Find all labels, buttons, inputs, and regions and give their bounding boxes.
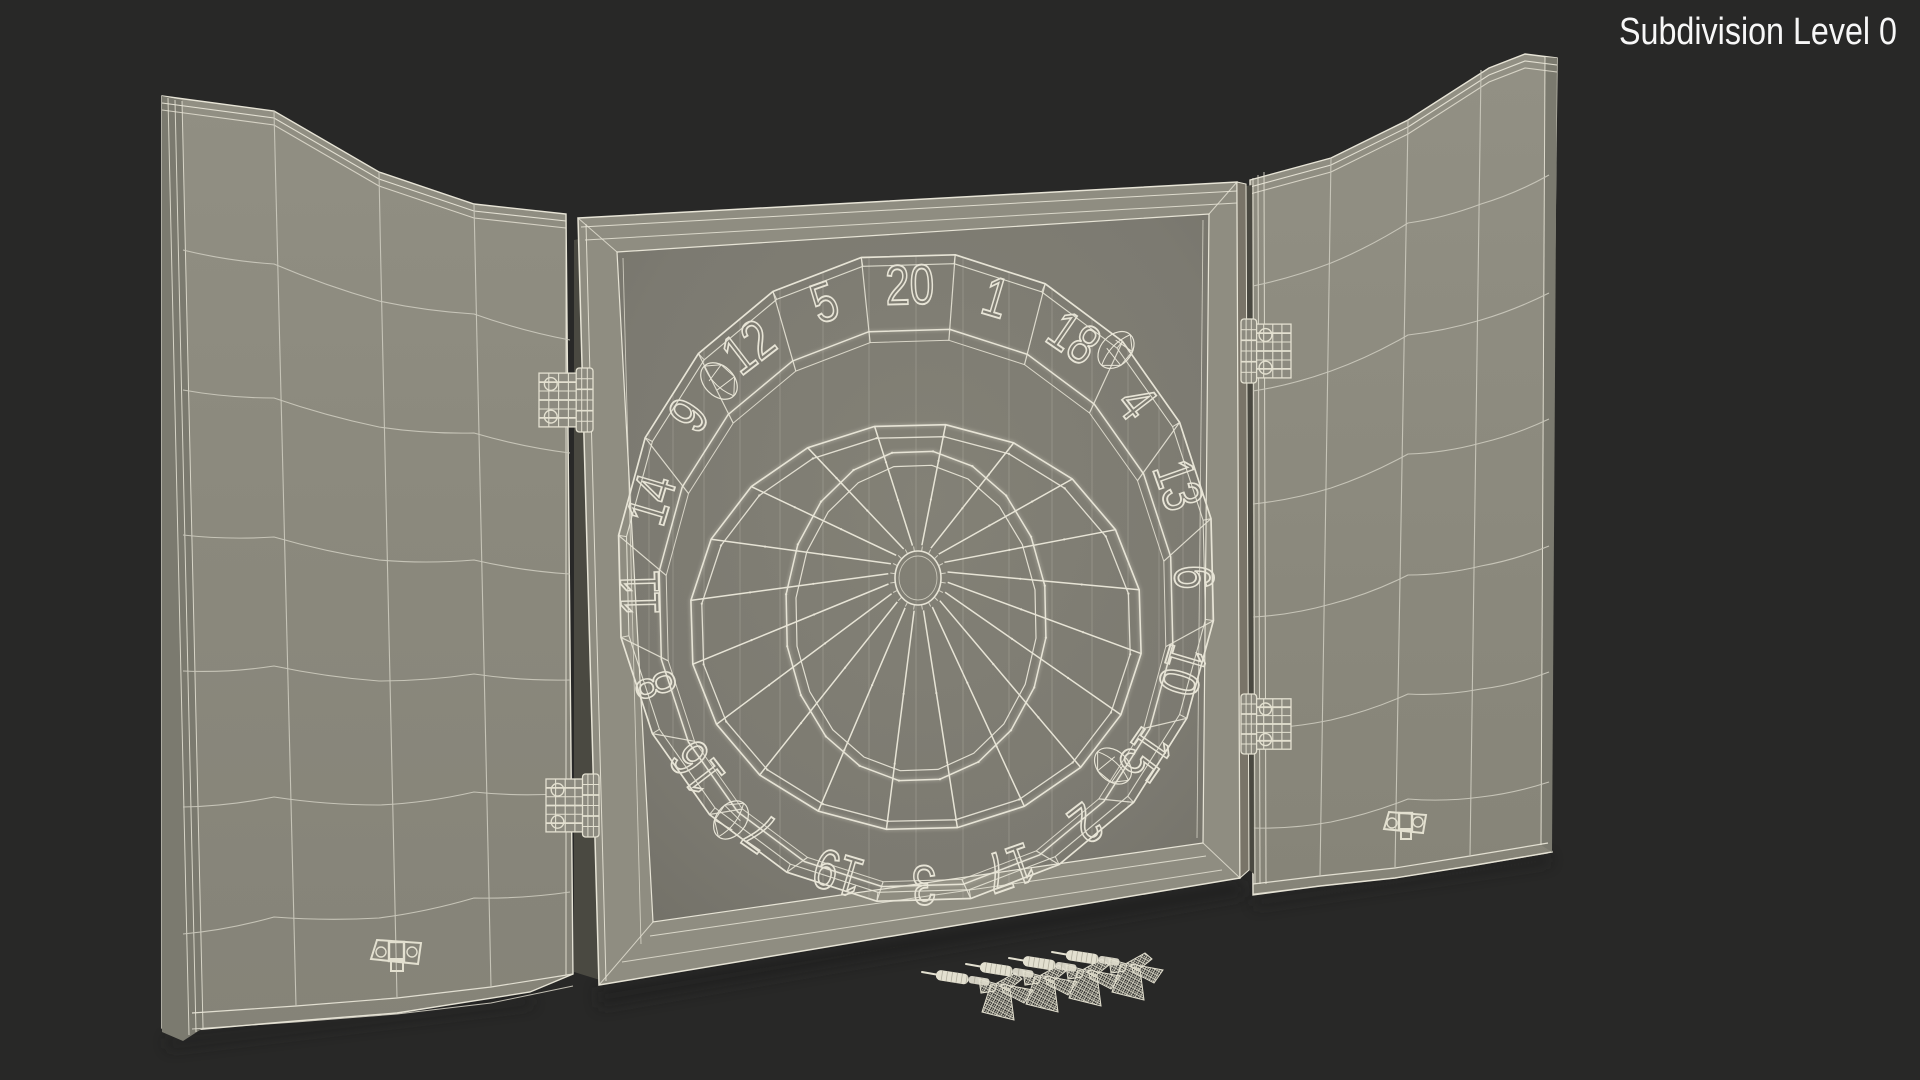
svg-text:6: 6 [1162, 564, 1225, 590]
svg-text:Subdivision Level 0: Subdivision Level 0 [1619, 11, 1897, 53]
svg-text:20: 20 [885, 253, 935, 317]
svg-text:3: 3 [911, 853, 937, 916]
svg-text:11: 11 [608, 569, 672, 616]
